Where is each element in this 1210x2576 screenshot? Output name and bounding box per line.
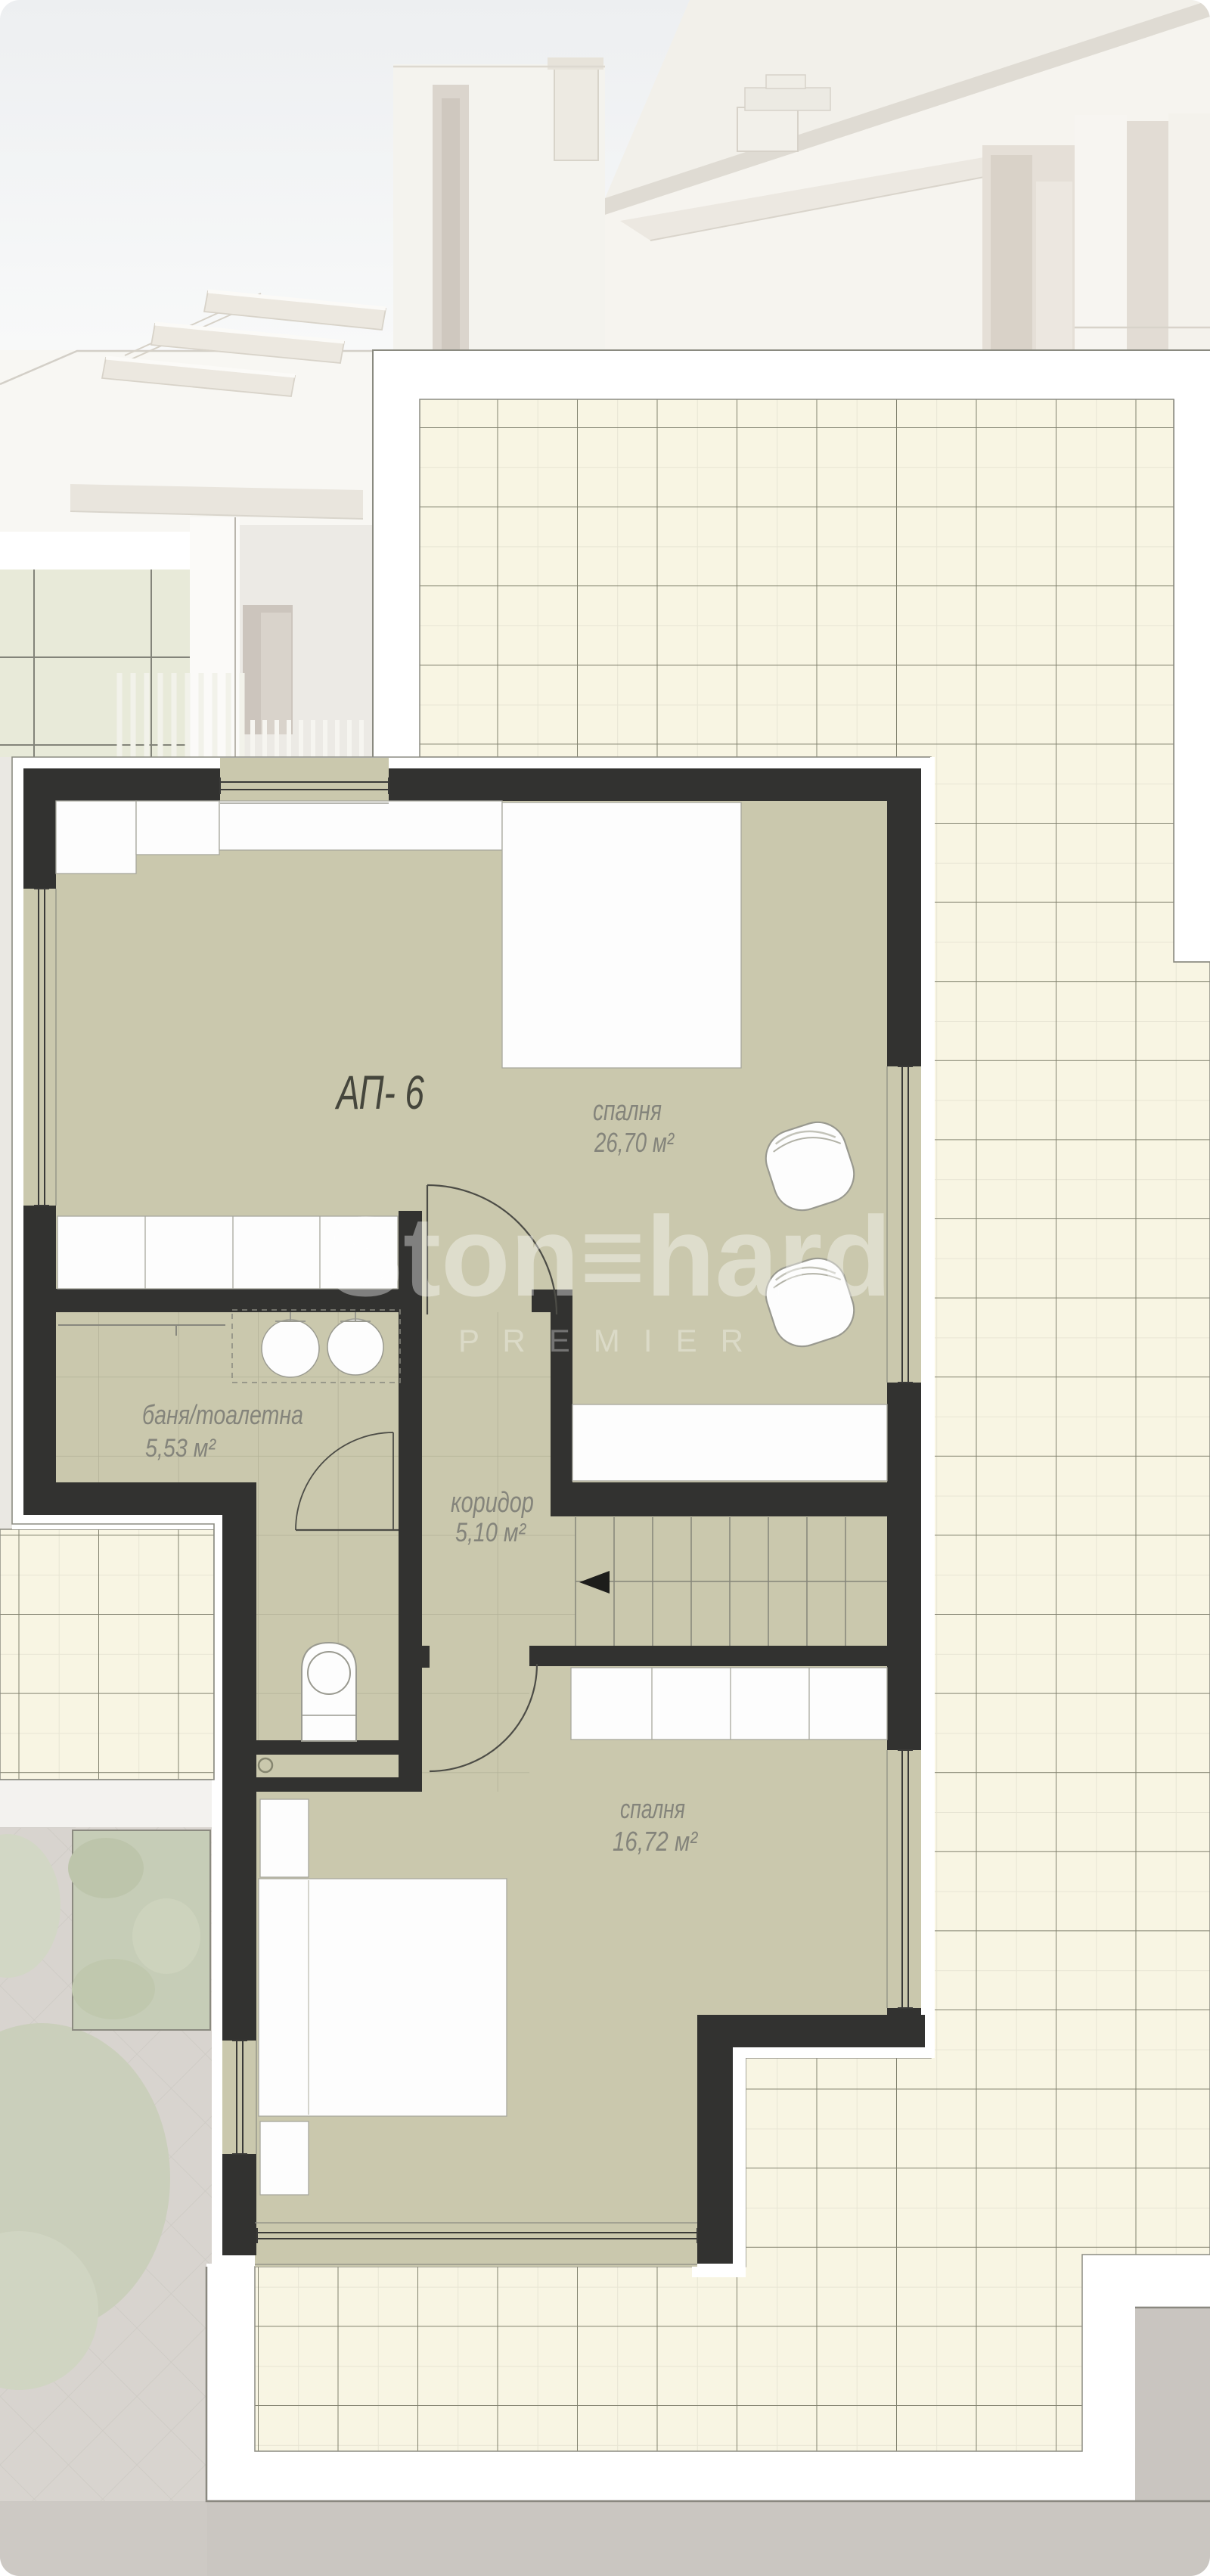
svg-text:спалня: спалня: [620, 1793, 685, 1824]
svg-text:спалня: спалня: [593, 1095, 662, 1127]
svg-text:баня/тоалетна: баня/тоалетна: [142, 1400, 303, 1430]
svg-text:26,70 м²: 26,70 м²: [594, 1127, 675, 1157]
svg-text:Ston≡hard: Ston≡hard: [327, 1193, 892, 1320]
svg-text:5,53 м²: 5,53 м²: [145, 1434, 216, 1463]
svg-text:5,10 м²: 5,10 м²: [455, 1517, 526, 1547]
svg-text:АП- 6: АП- 6: [335, 1066, 425, 1119]
svg-text:коридор: коридор: [451, 1486, 534, 1519]
svg-text:16,72 м²: 16,72 м²: [613, 1826, 698, 1856]
